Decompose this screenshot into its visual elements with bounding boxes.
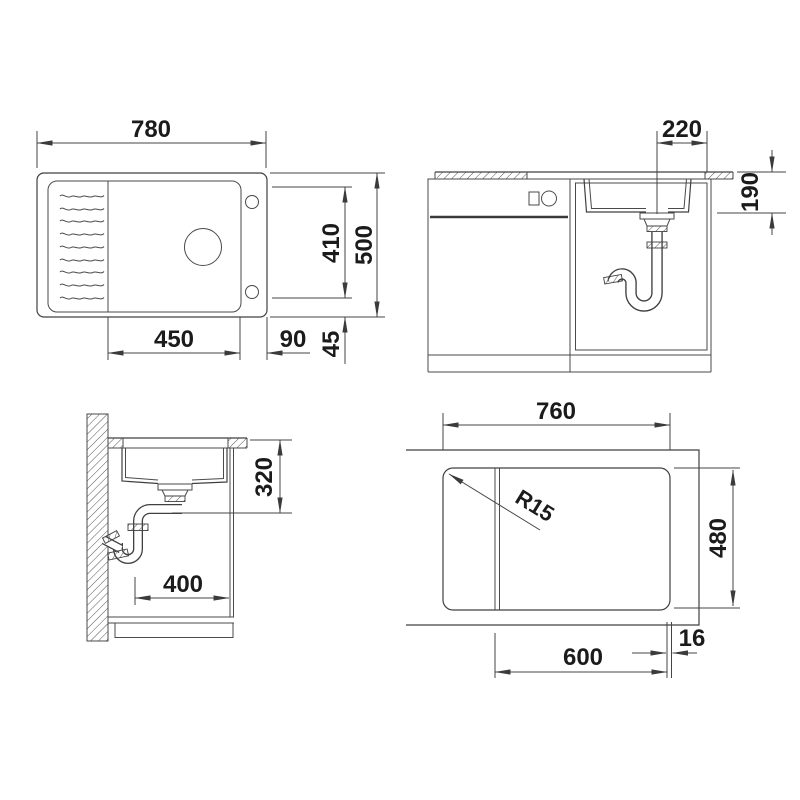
pipe-clamp-outlet xyxy=(604,274,623,284)
dim-bowl-width-450: 450 xyxy=(108,317,240,360)
strainer-nut xyxy=(647,226,667,232)
dim-worktop-to-outlet-320: 320 xyxy=(172,440,292,513)
strainer-cup xyxy=(644,219,670,226)
dim-edge-inset-45: 45 xyxy=(318,317,345,364)
dim-cutout-width-760: 760 xyxy=(443,398,670,450)
strainer-cup-side xyxy=(162,490,188,496)
worktop-edge-outline xyxy=(406,450,699,625)
dim-label-220: 220 xyxy=(662,116,702,143)
dim-label-600: 600 xyxy=(563,644,603,671)
sink-outer-outline xyxy=(37,173,267,317)
pipe-clamp-side-upper xyxy=(128,524,148,531)
dim-tap-ledge-90: 90 xyxy=(267,317,310,360)
worktop-hatch-left xyxy=(437,173,527,180)
drainboard-waves xyxy=(60,195,104,299)
dim-cabinet-width-600: 600 xyxy=(495,622,672,678)
tap-hole-bottom xyxy=(246,286,259,299)
drain-hole xyxy=(185,229,222,266)
dim-label-410: 410 xyxy=(318,223,345,263)
drain-trap-assembly xyxy=(604,213,674,306)
dim-wall-to-front-400: 400 xyxy=(135,571,229,605)
dim-bowl-depth-190: 190 xyxy=(717,150,786,235)
side-drain-trap-assembly xyxy=(103,484,192,560)
dishwasher-control-rect xyxy=(529,192,539,205)
dishwasher-cabinet xyxy=(428,179,570,355)
tap-hole-top xyxy=(246,196,259,209)
dim-overall-width-780: 780 xyxy=(37,116,266,168)
sink-technical-drawing: 780 410 500 450 90 45 xyxy=(0,0,800,800)
dim-label-780: 780 xyxy=(131,116,171,143)
front-section-view: 220 190 xyxy=(428,116,786,372)
dishwasher-control-knob xyxy=(542,191,557,206)
dim-label-480: 480 xyxy=(705,518,732,558)
dim-cutout-depth-480: 480 xyxy=(674,468,740,608)
worktop-hatch-front-side xyxy=(228,439,247,448)
worktop-hatch-right xyxy=(705,173,733,180)
dim-label-16: 16 xyxy=(679,625,706,652)
strainer-flange-side xyxy=(158,484,192,490)
dim-panel-thickness-16: 16 xyxy=(632,625,705,653)
worktop-hatch-wall-side xyxy=(108,439,123,448)
drawing-svg: 780 410 500 450 90 45 xyxy=(0,0,800,800)
dim-label-190: 190 xyxy=(737,172,764,212)
dim-label-450: 450 xyxy=(154,326,194,353)
dim-label-R15: R15 xyxy=(511,484,558,526)
side-section-view: 320 400 xyxy=(87,414,292,641)
bowl-side-section xyxy=(122,448,227,484)
sink-rim-outline xyxy=(48,181,241,312)
pipe-clamp-upper xyxy=(647,242,667,248)
bowl-section xyxy=(584,179,691,212)
dim-drain-to-edge-220: 220 xyxy=(657,116,707,214)
dim-label-90: 90 xyxy=(280,326,307,353)
dim-label-500: 500 xyxy=(351,225,378,265)
dim-label-760: 760 xyxy=(536,398,576,425)
cutout-outline xyxy=(443,468,670,610)
wall-hatch xyxy=(87,414,108,641)
plan-view: 780 410 500 450 90 45 xyxy=(37,116,385,364)
strainer-nut-side xyxy=(165,496,185,502)
dim-label-320: 320 xyxy=(251,457,278,497)
plinth xyxy=(428,355,711,372)
cabinet-side-outline xyxy=(108,448,234,638)
dim-label-45: 45 xyxy=(318,331,345,358)
dim-bowl-length-410: 410 xyxy=(272,187,352,298)
dim-label-400: 400 xyxy=(163,571,203,598)
cutout-view: R15 760 480 600 16 xyxy=(406,398,740,678)
dim-corner-radius-R15: R15 xyxy=(449,474,559,530)
